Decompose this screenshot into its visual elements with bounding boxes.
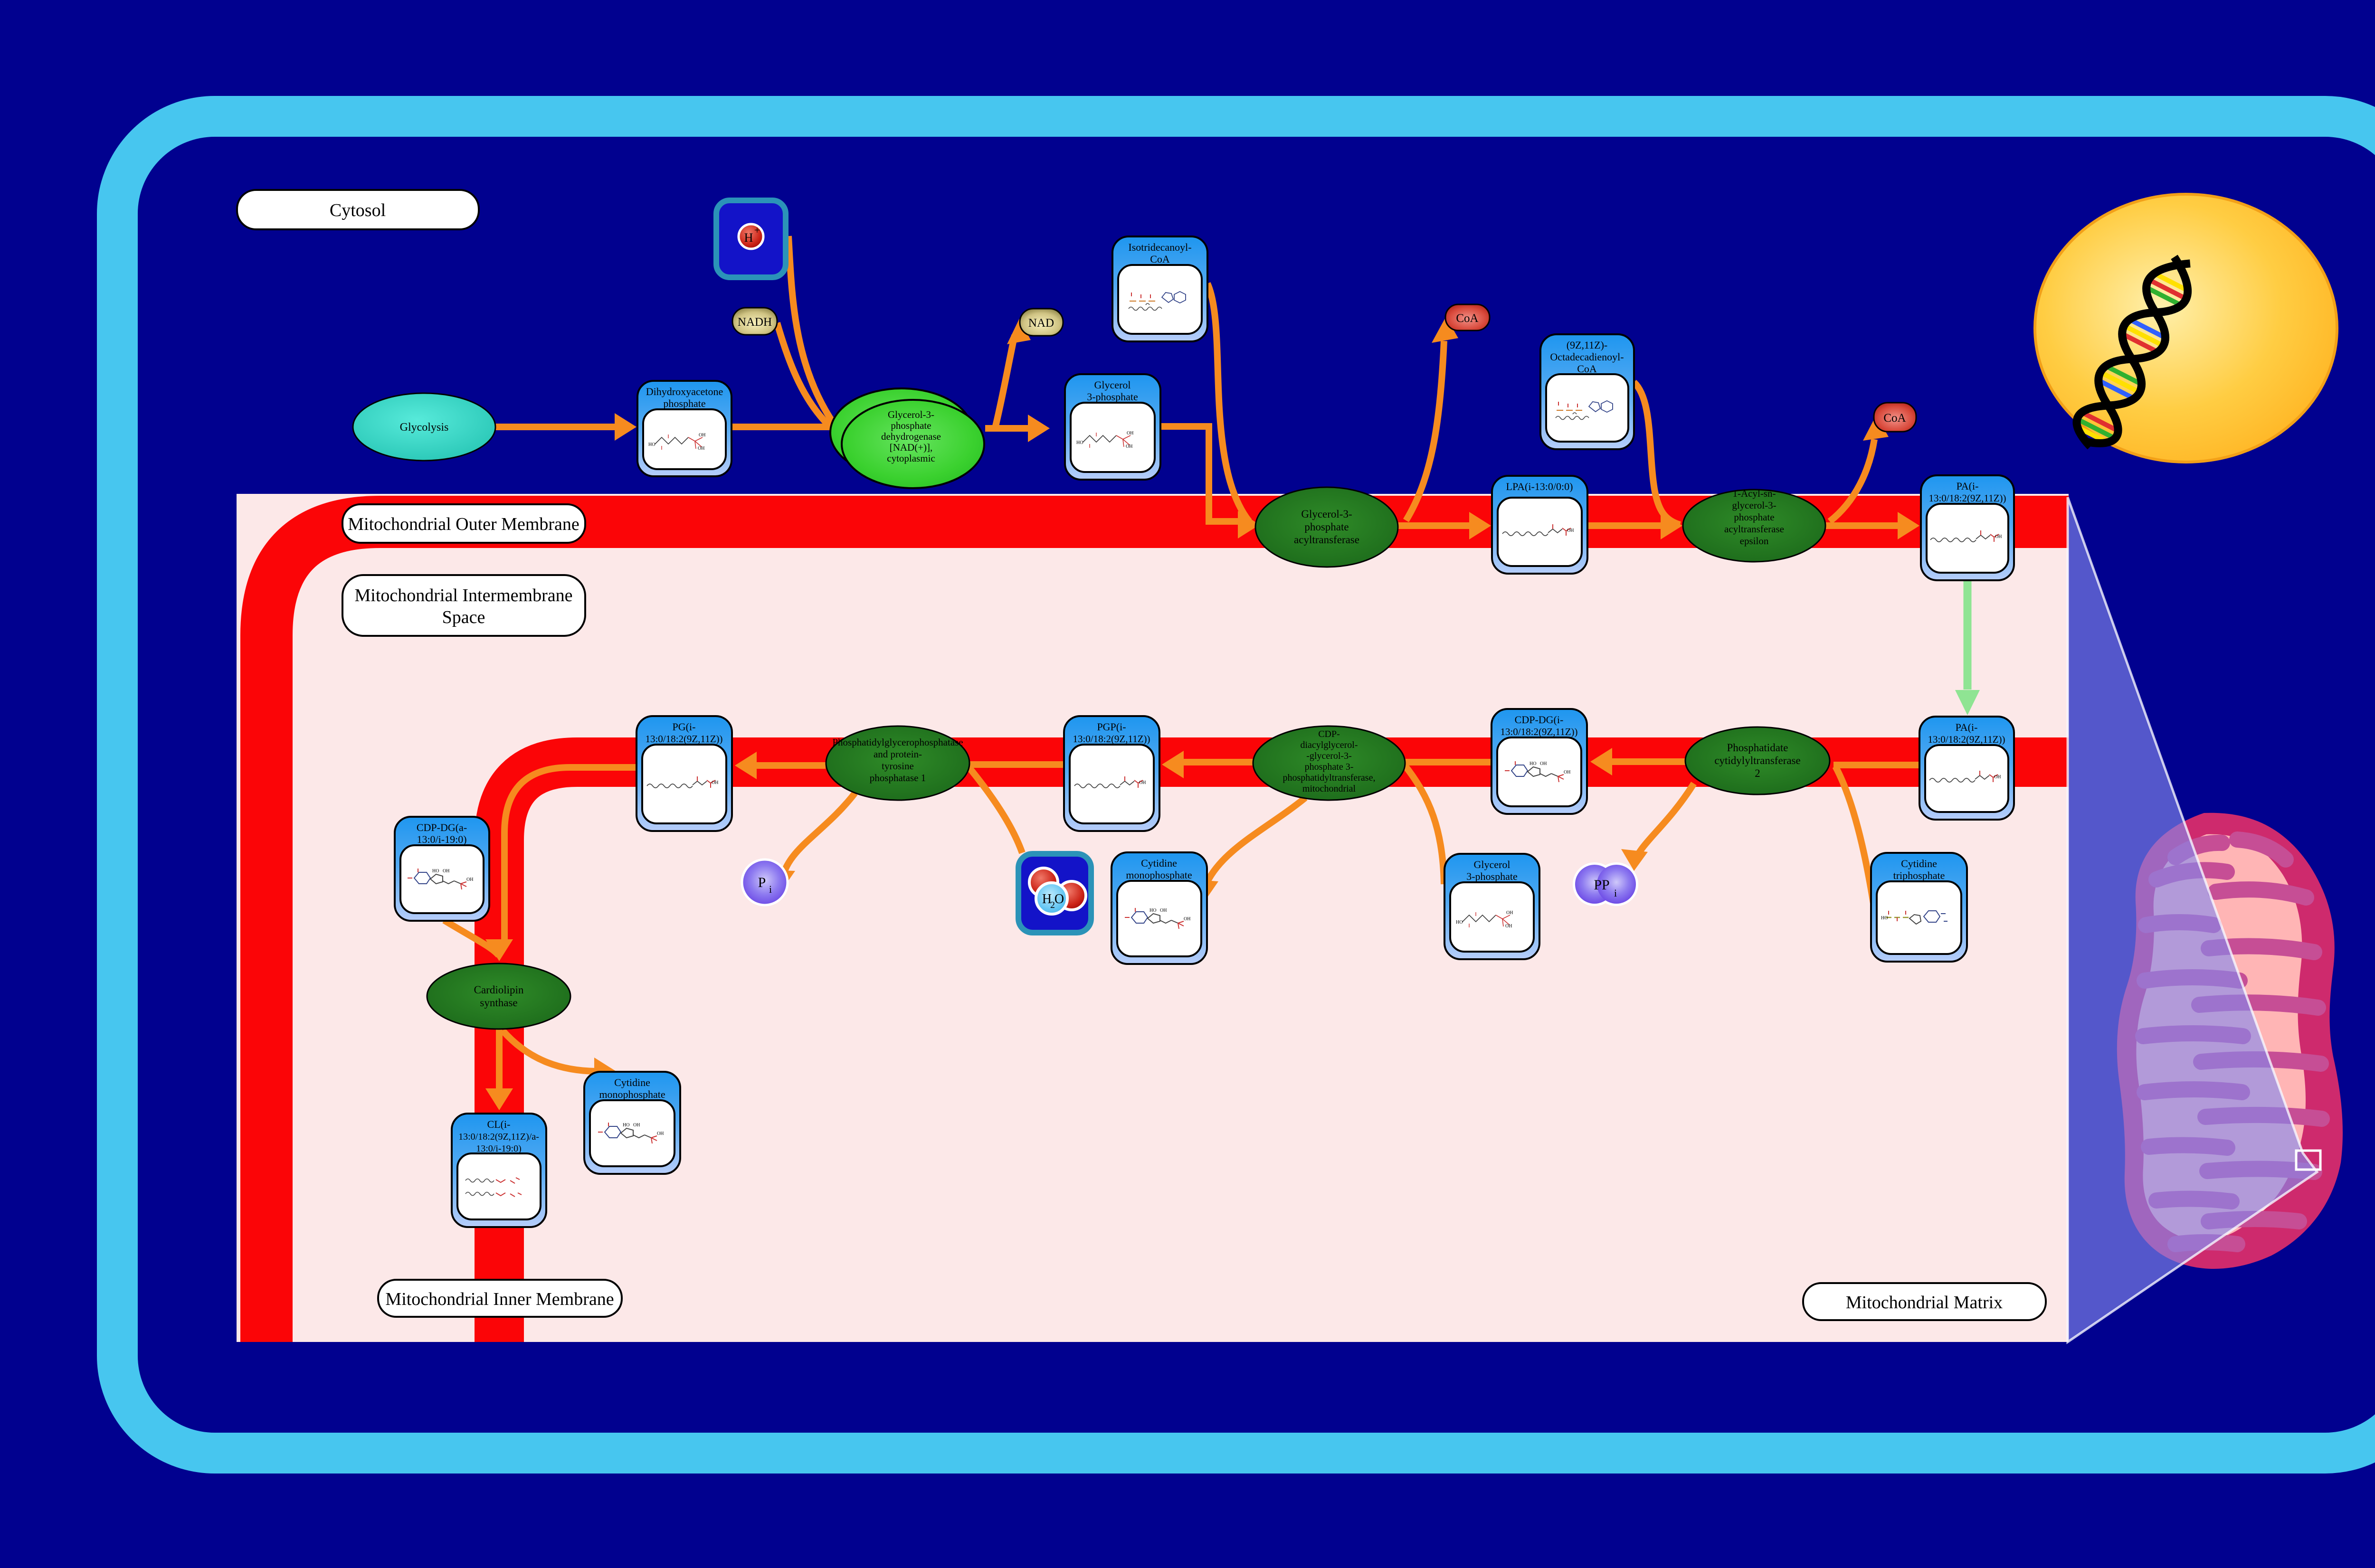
svg-text:Space: Space bbox=[442, 607, 485, 627]
svg-text:phosphatase 1: phosphatase 1 bbox=[870, 772, 926, 784]
svg-text:acyltransferase: acyltransferase bbox=[1294, 534, 1359, 546]
svg-text:Glycerol-3-: Glycerol-3- bbox=[1301, 508, 1352, 520]
svg-text:+: + bbox=[754, 224, 760, 236]
svg-text:13:0/18:2(9Z,11Z)): 13:0/18:2(9Z,11Z)) bbox=[1928, 492, 2006, 504]
svg-text:CoA: CoA bbox=[1577, 363, 1597, 375]
svg-text:2: 2 bbox=[1755, 767, 1760, 779]
svg-text:CoA: CoA bbox=[1150, 253, 1170, 265]
svg-text:PA(i-: PA(i- bbox=[1957, 480, 1979, 492]
svg-text:Glycerol: Glycerol bbox=[1094, 379, 1131, 391]
svg-text:P: P bbox=[758, 875, 766, 890]
svg-text:cytidylyltransferase: cytidylyltransferase bbox=[1714, 755, 1800, 766]
svg-text:13:0/i-19:0): 13:0/i-19:0) bbox=[476, 1143, 522, 1154]
svg-text:triphosphate: triphosphate bbox=[1893, 869, 1945, 881]
svg-text:-glycerol-3-: -glycerol-3- bbox=[1306, 751, 1352, 761]
svg-text:H: H bbox=[744, 231, 753, 245]
svg-text:and protein-: and protein- bbox=[874, 748, 922, 760]
svg-text:phosphate: phosphate bbox=[1304, 521, 1349, 533]
svg-text:[NAD(+)],: [NAD(+)], bbox=[890, 442, 933, 453]
svg-text:epsilon: epsilon bbox=[1740, 535, 1769, 547]
svg-text:Mitochondrial Inner Membrane: Mitochondrial Inner Membrane bbox=[385, 1289, 614, 1309]
svg-text:Glycerol-3-: Glycerol-3- bbox=[888, 409, 934, 420]
svg-text:Mitochondrial Outer Membrane: Mitochondrial Outer Membrane bbox=[348, 514, 579, 534]
svg-text:tyrosine: tyrosine bbox=[882, 760, 914, 772]
svg-text:dehydrogenase: dehydrogenase bbox=[881, 431, 941, 442]
svg-text:CoA: CoA bbox=[1883, 412, 1906, 425]
svg-text:Phosphatidate: Phosphatidate bbox=[1727, 742, 1788, 754]
svg-text:3-phosphate: 3-phosphate bbox=[1466, 870, 1518, 882]
svg-text:Phosphatidylglycerophosphatase: Phosphatidylglycerophosphatase bbox=[832, 737, 963, 748]
svg-text:(9Z,11Z)-: (9Z,11Z)- bbox=[1567, 339, 1608, 351]
svg-text:synthase: synthase bbox=[480, 997, 517, 1009]
svg-text:glycerol-3-: glycerol-3- bbox=[1732, 500, 1776, 511]
svg-text:Cardiolipin: Cardiolipin bbox=[474, 984, 524, 996]
svg-text:phosphate: phosphate bbox=[891, 420, 931, 431]
svg-text:O: O bbox=[1054, 892, 1064, 907]
svg-text:PA(i-: PA(i- bbox=[1956, 721, 1978, 733]
svg-text:Cytidine: Cytidine bbox=[1141, 857, 1177, 869]
svg-text:i: i bbox=[769, 883, 772, 895]
svg-text:Isotridecanoyl-: Isotridecanoyl- bbox=[1128, 241, 1191, 253]
svg-text:phosphate 3-: phosphate 3- bbox=[1305, 762, 1354, 772]
svg-text:monophosphate: monophosphate bbox=[599, 1088, 665, 1100]
svg-text:13:0/18:2(9Z,11Z)/a-: 13:0/18:2(9Z,11Z)/a- bbox=[458, 1132, 539, 1142]
svg-text:CDP-DG(a-: CDP-DG(a- bbox=[417, 822, 467, 833]
svg-text:Cytosol: Cytosol bbox=[330, 200, 386, 220]
svg-text:PG(i-: PG(i- bbox=[673, 721, 696, 733]
svg-text:NADH: NADH bbox=[738, 316, 772, 329]
svg-text:PP: PP bbox=[1594, 877, 1609, 893]
svg-text:Dihydroxyacetone: Dihydroxyacetone bbox=[646, 386, 723, 397]
svg-text:phosphatidyltransferase,: phosphatidyltransferase, bbox=[1283, 773, 1376, 783]
svg-text:Cytidine: Cytidine bbox=[614, 1077, 650, 1088]
svg-text:Cytidine: Cytidine bbox=[1901, 858, 1937, 869]
svg-text:CDP-: CDP- bbox=[1318, 729, 1340, 739]
svg-text:Glycolysis: Glycolysis bbox=[400, 421, 449, 434]
svg-text:CoA: CoA bbox=[1456, 312, 1478, 325]
svg-text:monophosphate: monophosphate bbox=[1126, 869, 1192, 881]
svg-text:1-Acyl-sn-: 1-Acyl-sn- bbox=[1733, 488, 1776, 499]
svg-text:3-phosphate: 3-phosphate bbox=[1087, 391, 1138, 403]
svg-text:CDP-DG(i-: CDP-DG(i- bbox=[1515, 714, 1564, 726]
svg-text:CL(i-: CL(i- bbox=[487, 1118, 511, 1130]
svg-text:i: i bbox=[1614, 887, 1617, 899]
svg-text:13:0/18:2(9Z,11Z)): 13:0/18:2(9Z,11Z)) bbox=[645, 733, 722, 745]
svg-text:diacylglycerol-: diacylglycerol- bbox=[1300, 740, 1358, 750]
svg-text:phosphate: phosphate bbox=[663, 397, 705, 409]
svg-text:Mitochondrial Intermembrane: Mitochondrial Intermembrane bbox=[354, 586, 572, 605]
svg-text:Glycerol: Glycerol bbox=[1474, 859, 1510, 870]
svg-text:cytoplasmic: cytoplasmic bbox=[887, 453, 935, 464]
svg-text:Mitochondrial Matrix: Mitochondrial Matrix bbox=[1846, 1293, 2003, 1313]
svg-text:13:0/18:2(9Z,11Z)): 13:0/18:2(9Z,11Z)) bbox=[1073, 733, 1150, 745]
svg-text:LPA(i-13:0/0:0): LPA(i-13:0/0:0) bbox=[1506, 481, 1573, 492]
svg-text:13:0/i-19:0): 13:0/i-19:0) bbox=[417, 833, 466, 845]
svg-text:acyltransferase: acyltransferase bbox=[1724, 523, 1784, 535]
svg-text:phosphate: phosphate bbox=[1734, 511, 1774, 523]
svg-text:NAD: NAD bbox=[1028, 317, 1054, 330]
svg-text:13:0/18:2(9Z,11Z)): 13:0/18:2(9Z,11Z)) bbox=[1500, 726, 1577, 737]
svg-text:mitochondrial: mitochondrial bbox=[1302, 784, 1356, 794]
svg-text:Octadecadienoyl-: Octadecadienoyl- bbox=[1550, 351, 1624, 363]
svg-text:PGP(i-: PGP(i- bbox=[1097, 721, 1126, 733]
svg-text:13:0/18:2(9Z,11Z)): 13:0/18:2(9Z,11Z)) bbox=[1928, 734, 2005, 745]
